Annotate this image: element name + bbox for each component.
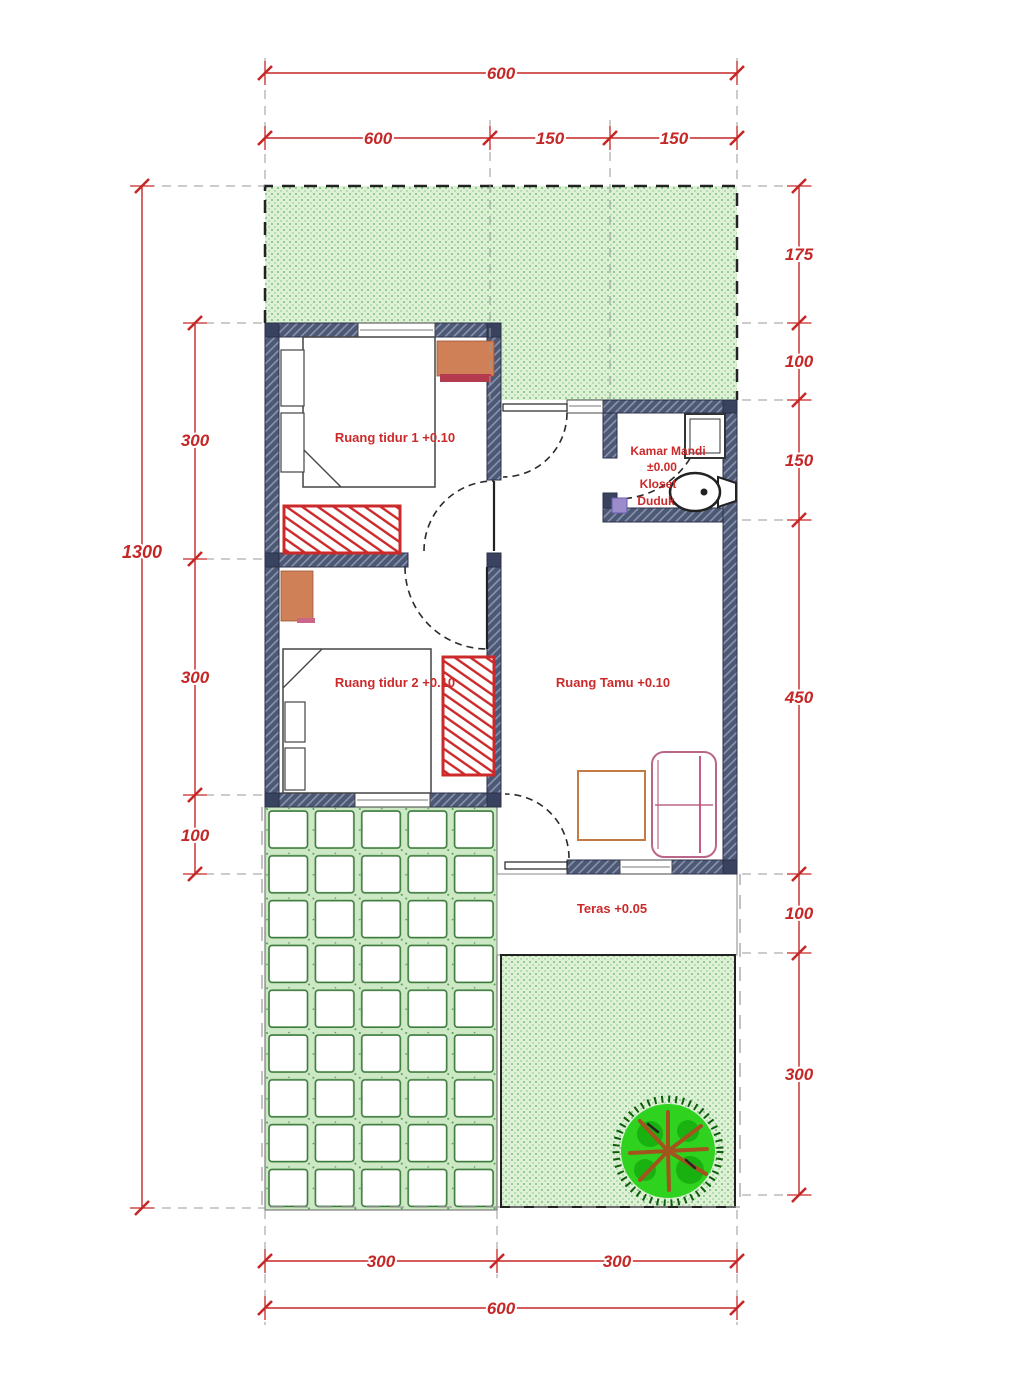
floor-drain-icon: [612, 498, 627, 513]
dim-right-seg1: 175: [785, 245, 814, 264]
door-bedroom1: [424, 481, 494, 551]
bedroom1-label: Ruang tidur 1 +0.10: [335, 430, 455, 445]
dim-left-total: 1300: [122, 542, 162, 562]
window-bedroom2: [355, 793, 430, 807]
window-bedroom1: [358, 323, 435, 337]
dim-left-seg1: 300: [181, 431, 210, 450]
dresser1-icon: [437, 341, 494, 382]
dim-top-total: 600: [487, 64, 516, 83]
door-entrance: [505, 794, 569, 869]
bathroom-level-label: ±0.00: [647, 460, 677, 474]
dim-bottom-total: 600: [487, 1299, 516, 1318]
living-room-label: Ruang Tamu +0.10: [556, 675, 670, 690]
wardrobe1-icon: [284, 506, 400, 553]
carport-grass-block-paving: [265, 807, 497, 1210]
terrace-label: Teras +0.05: [577, 901, 647, 916]
bathroom-fixture-label-1: Kloset: [640, 477, 677, 491]
door-bedroom2: [405, 567, 487, 649]
door-back: [503, 404, 567, 477]
dim-right-seg6: 300: [785, 1065, 814, 1084]
bed1-icon: [281, 337, 435, 487]
dim-top-seg1: 600: [364, 129, 393, 148]
dim-top-seg2: 150: [536, 129, 565, 148]
coffee-table-icon: [578, 771, 645, 840]
dim-right-seg5: 100: [785, 904, 814, 923]
dim-left-seg2: 300: [181, 668, 210, 687]
dim-bottom-seg1: 300: [367, 1252, 396, 1271]
toilet-icon: [670, 473, 736, 511]
bedroom2-label: Ruang tidur 2 +0.10: [335, 675, 455, 690]
sofa-icon: [652, 752, 716, 857]
dim-right-seg4: 450: [784, 688, 814, 707]
dim-right-seg2: 100: [785, 352, 814, 371]
window-living-room: [620, 860, 672, 874]
floor-plan-drawing: Ruang tidur 1 +0.10 Ruang tidur 2 +0.10 …: [0, 0, 1024, 1382]
floor-plan-canvas: Ruang tidur 1 +0.10 Ruang tidur 2 +0.10 …: [0, 0, 1024, 1382]
bathroom-name-label: Kamar Mandi: [630, 444, 705, 458]
dim-right-seg3: 150: [785, 451, 814, 470]
dim-top-seg3: 150: [660, 129, 689, 148]
bed2-icon: [283, 649, 431, 793]
dresser2-icon: [281, 571, 315, 623]
window-bathroom: [567, 400, 603, 413]
dim-left-seg3: 100: [181, 826, 210, 845]
bathroom-fixture-label-2: Duduk: [637, 494, 675, 508]
dim-bottom-seg2: 300: [603, 1252, 632, 1271]
